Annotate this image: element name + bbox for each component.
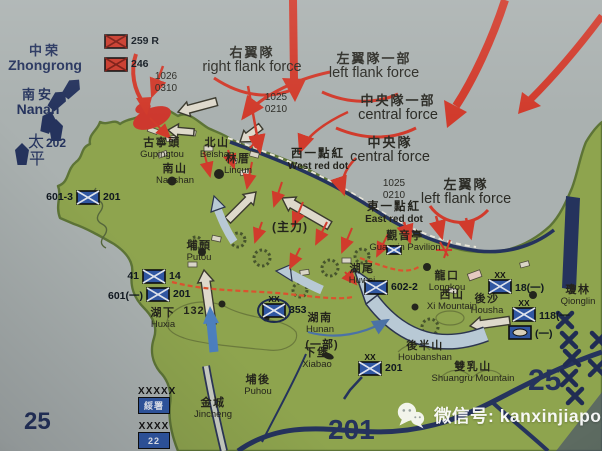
ship-number: 202: [46, 137, 66, 150]
watermark-text: 微信号: kanxinjiapo: [434, 403, 601, 428]
taiping-ship-label: 太 202 平: [0, 0, 602, 451]
wechat-icon: [396, 402, 426, 429]
map-content: 古寧頭Gupingtou北山Beishan林厝Lincun南山Nanshan埔頭…: [0, 0, 602, 451]
map-photo: 古寧頭Gupingtou北山Beishan林厝Lincun南山Nanshan埔頭…: [0, 0, 602, 451]
watermark: 微信号: kanxinjiapo: [396, 402, 601, 429]
ship-name-char-1: 太: [28, 134, 44, 152]
ship-name-char-2: 平: [29, 151, 45, 169]
